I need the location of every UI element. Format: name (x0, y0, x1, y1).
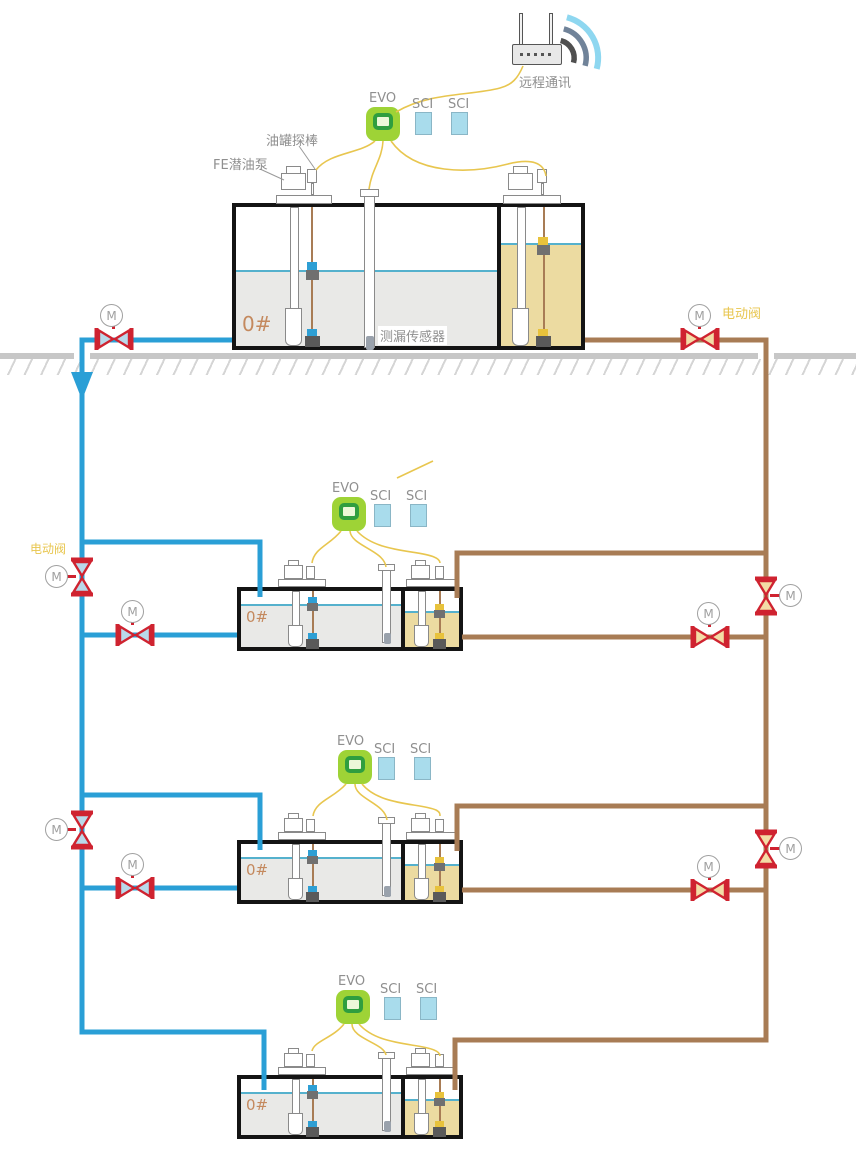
motor-label: M (127, 605, 137, 619)
motor-circle: M (697, 602, 720, 625)
signal-wire (312, 66, 546, 1056)
motor-label: M (703, 860, 713, 874)
motor-label: M (703, 607, 713, 621)
electric-valve-icon (680, 328, 720, 350)
electric-valve-icon (71, 810, 93, 850)
remote-comm-label: 远程通讯 (519, 72, 571, 91)
pump-label: FE潜油泵 (213, 154, 268, 173)
motor-circle: M (697, 855, 720, 878)
motor-circle: M (121, 600, 144, 623)
label-leader-line (260, 146, 315, 180)
motor-circle: M (779, 837, 802, 860)
leak-sensor-label: 测漏传感器 (378, 326, 447, 345)
sci-label: SCI (406, 489, 427, 504)
electric-valve-icon (755, 829, 777, 869)
flow-arrow-icon (71, 372, 93, 400)
motor-circle: M (45, 565, 68, 588)
evo-label: EVO (337, 734, 364, 749)
diesel-pipe (82, 340, 264, 1090)
router-ports (520, 53, 554, 56)
electric-valve-label: 电动阀 (722, 303, 761, 322)
sci-label: SCI (380, 982, 401, 997)
tank-probe-label: 油罐探棒 (266, 130, 318, 149)
fuel-station-diagram: 远程通讯 EVO SCI SCI 油罐探棒 FE潜油泵 0# 测漏传感器 M (0, 0, 856, 1154)
electric-valve-icon (115, 877, 155, 899)
motor-circle: M (100, 304, 123, 327)
electric-valve-icon (690, 879, 730, 901)
sci-label: SCI (448, 97, 469, 112)
motor-label: M (694, 309, 704, 323)
sci-label: SCI (412, 97, 433, 112)
electric-valve-icon (94, 328, 134, 350)
motor-label: M (785, 589, 795, 603)
wifi-signal-icon (561, 17, 598, 69)
electric-valve-icon (755, 576, 777, 616)
motor-circle: M (45, 818, 68, 841)
motor-circle: M (121, 853, 144, 876)
evo-label: EVO (332, 481, 359, 496)
evo-label: EVO (369, 91, 396, 106)
evo-label: EVO (338, 974, 365, 989)
sci-label: SCI (416, 982, 437, 997)
electric-valve-icon (115, 624, 155, 646)
electric-valve-icon (71, 557, 93, 597)
sci-label: SCI (374, 742, 395, 757)
motor-label: M (106, 309, 116, 323)
gasoline-pipe (455, 340, 766, 1090)
motor-label: M (51, 570, 61, 584)
electric-valve-icon (690, 626, 730, 648)
motor-label: M (51, 823, 61, 837)
motor-circle: M (688, 304, 711, 327)
sci-label: SCI (410, 742, 431, 757)
sci-label: SCI (370, 489, 391, 504)
motor-label: M (127, 858, 137, 872)
motor-circle: M (779, 584, 802, 607)
pipe-layer (0, 0, 856, 1154)
electric-valve-label: 电动阀 (30, 540, 66, 557)
motor-label: M (785, 842, 795, 856)
